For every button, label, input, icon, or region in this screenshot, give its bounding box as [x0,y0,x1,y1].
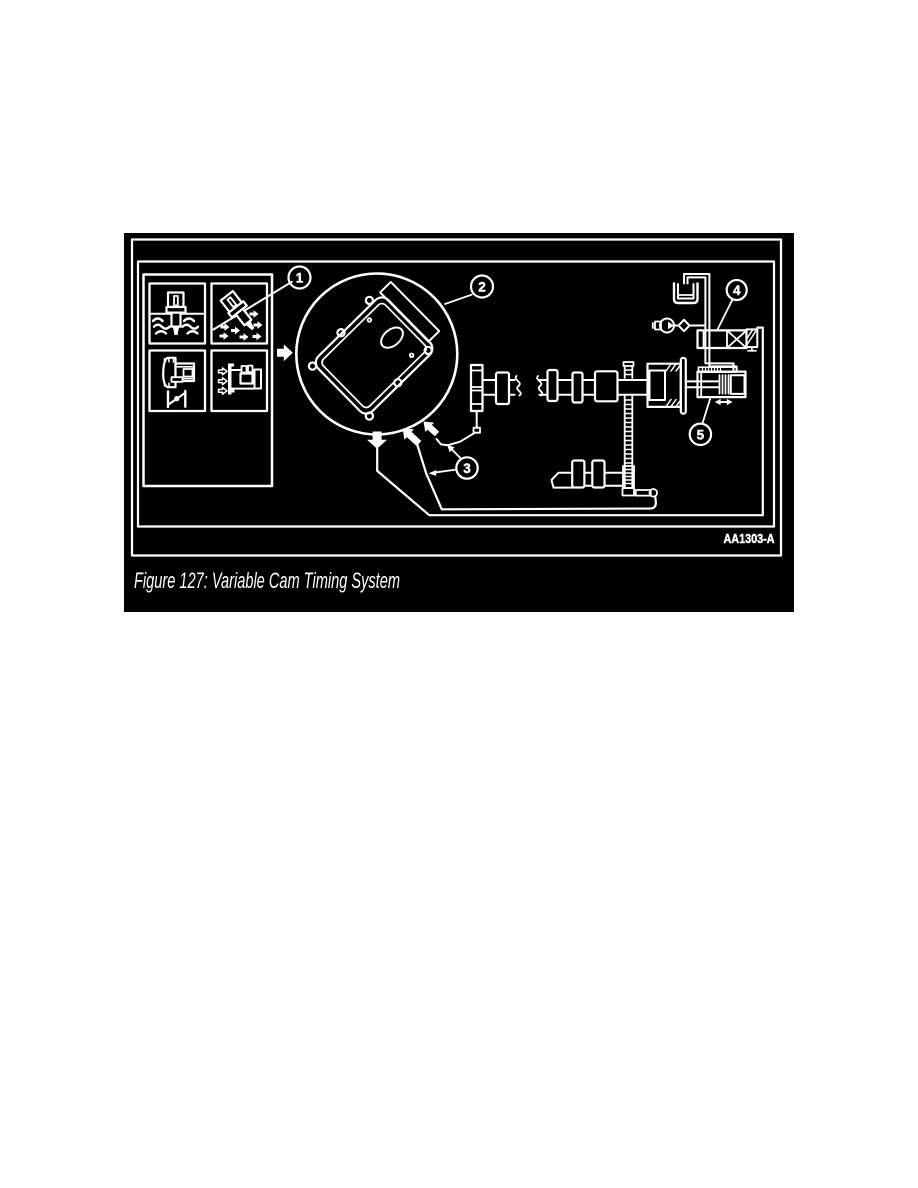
svg-text:1: 1 [296,271,304,286]
svg-text:5: 5 [697,427,705,442]
svg-text:4: 4 [733,283,741,298]
svg-text:Figure 127: Variable Cam Timin: Figure 127: Variable Cam Timing System [134,568,400,593]
svg-text:AA1303-A: AA1303-A [724,532,775,546]
svg-text:3: 3 [463,461,471,476]
svg-text:2: 2 [478,280,486,295]
